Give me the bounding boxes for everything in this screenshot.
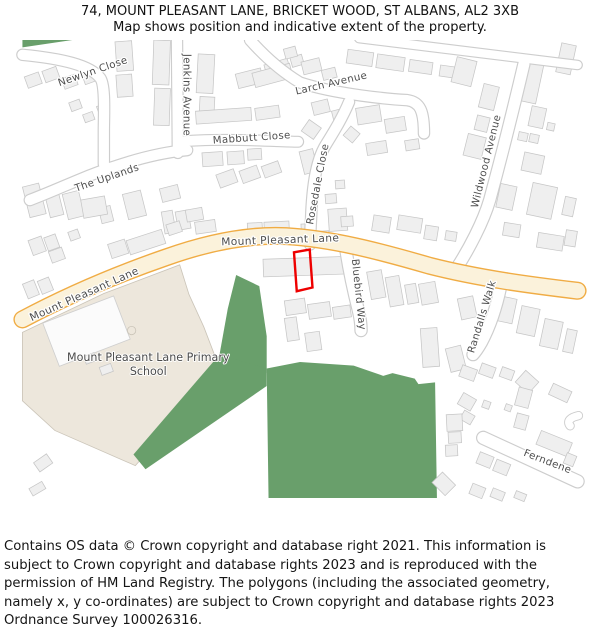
school-label-line2: School xyxy=(130,365,167,378)
building xyxy=(332,305,351,319)
building xyxy=(457,296,477,320)
woodland-top-left-wedge xyxy=(22,40,72,47)
building xyxy=(29,481,46,496)
building xyxy=(301,58,322,75)
building xyxy=(516,306,540,337)
building xyxy=(239,165,261,184)
building xyxy=(372,215,392,233)
building xyxy=(284,298,306,315)
building xyxy=(301,120,321,140)
building xyxy=(376,54,405,72)
copyright-notice: Contains OS data © Crown copyright and d… xyxy=(4,538,596,631)
building xyxy=(418,281,438,305)
building xyxy=(195,219,217,234)
building xyxy=(159,184,180,202)
building xyxy=(502,222,520,237)
map-canvas: Newlyn Close Jenkins Avenue Larch Avenue… xyxy=(0,40,600,535)
map-header: 74, MOUNT PLEASANT LANE, BRICKET WOOD, S… xyxy=(0,0,600,36)
building xyxy=(459,365,478,382)
property-address-title: 74, MOUNT PLEASANT LANE, BRICKET WOOD, S… xyxy=(0,4,600,20)
building xyxy=(307,302,331,320)
building xyxy=(384,116,406,133)
building xyxy=(24,72,42,88)
building xyxy=(514,491,527,502)
building xyxy=(216,169,238,188)
building xyxy=(202,151,223,166)
building xyxy=(311,99,330,116)
building xyxy=(343,126,360,143)
building xyxy=(499,367,515,381)
building xyxy=(474,115,490,132)
building xyxy=(385,275,404,307)
building xyxy=(108,239,129,259)
building xyxy=(69,99,83,111)
building xyxy=(457,393,476,412)
building xyxy=(564,230,577,247)
building xyxy=(563,329,578,354)
building xyxy=(68,229,81,241)
building xyxy=(424,225,439,241)
building xyxy=(445,445,458,457)
building xyxy=(346,49,374,66)
building xyxy=(446,414,463,431)
building xyxy=(255,105,280,120)
building xyxy=(548,383,572,403)
building xyxy=(405,139,420,151)
building xyxy=(445,231,457,242)
building xyxy=(539,318,563,349)
map-subtitle: Map shows position and indicative extent… xyxy=(0,20,600,36)
building xyxy=(536,232,564,251)
building xyxy=(335,180,345,189)
building xyxy=(356,105,382,125)
building xyxy=(521,152,545,174)
road-jenkins-avenue xyxy=(177,40,178,153)
building xyxy=(341,216,354,227)
building xyxy=(448,432,462,444)
building xyxy=(81,196,108,218)
building xyxy=(529,133,540,143)
building xyxy=(476,452,494,469)
building xyxy=(34,454,53,472)
building xyxy=(397,215,423,233)
building xyxy=(478,363,496,378)
building xyxy=(536,430,572,456)
school-yard-circle xyxy=(127,326,135,334)
building xyxy=(152,40,170,85)
building xyxy=(562,196,577,216)
building xyxy=(28,236,46,256)
building xyxy=(284,317,299,342)
street-label-jenkins-avenue: Jenkins Avenue xyxy=(180,53,191,136)
building xyxy=(263,256,347,276)
building xyxy=(325,194,337,204)
building xyxy=(405,283,419,304)
building xyxy=(122,190,146,220)
building xyxy=(451,57,477,87)
building xyxy=(518,132,529,142)
building xyxy=(366,140,388,155)
building xyxy=(367,270,386,300)
building xyxy=(22,280,39,299)
property-map: Newlyn Close Jenkins Avenue Larch Avenue… xyxy=(0,40,600,535)
building xyxy=(482,400,491,409)
building xyxy=(247,148,262,160)
building xyxy=(528,106,547,129)
building xyxy=(227,151,245,165)
building xyxy=(420,328,439,368)
building xyxy=(408,59,433,74)
school-label-line1: Mount Pleasant Lane Primary xyxy=(67,351,230,364)
building xyxy=(185,207,203,222)
building xyxy=(514,387,532,408)
building xyxy=(478,83,499,110)
building xyxy=(261,161,282,178)
building xyxy=(116,74,133,97)
woodland-block xyxy=(267,362,437,498)
building xyxy=(504,404,512,412)
building xyxy=(305,331,322,351)
building xyxy=(37,277,53,294)
building xyxy=(514,413,529,430)
building xyxy=(493,459,511,476)
building xyxy=(469,483,486,498)
building xyxy=(546,122,555,131)
building xyxy=(153,88,170,126)
building xyxy=(526,182,557,219)
building xyxy=(83,111,95,122)
building xyxy=(196,54,215,94)
building xyxy=(490,488,505,501)
